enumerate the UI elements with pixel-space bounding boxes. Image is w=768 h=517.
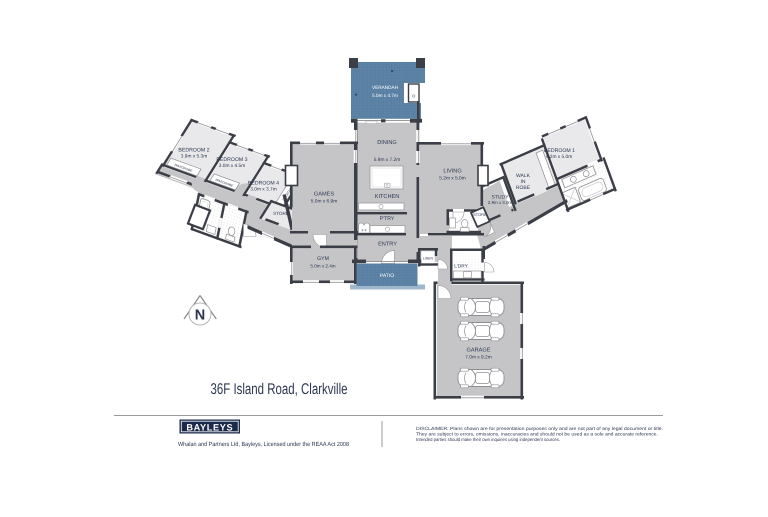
svg-text:ENTRY: ENTRY — [378, 242, 397, 248]
svg-text:STORE: STORE — [473, 212, 487, 217]
svg-text:BEDROOM 2: BEDROOM 2 — [178, 148, 209, 154]
svg-text:3.0m x 3.7m: 3.0m x 3.7m — [250, 187, 276, 193]
svg-text:ROBE: ROBE — [516, 185, 531, 191]
svg-text:Intended parties should make t: Intended parties should make their own i… — [416, 437, 560, 442]
svg-text:PATIO: PATIO — [380, 273, 394, 279]
svg-text:KITCHEN: KITCHEN — [375, 194, 400, 200]
svg-text:2.9m x 3.0m: 2.9m x 3.0m — [488, 200, 512, 205]
svg-text:36F Island Road, Clarkville: 36F Island Road, Clarkville — [211, 381, 348, 398]
svg-text:BEDROOM 1: BEDROOM 1 — [544, 148, 575, 154]
svg-text:GAMES: GAMES — [314, 192, 334, 198]
svg-text:3.9m x 5.3m: 3.9m x 5.3m — [181, 154, 207, 160]
svg-text:4.2m x 5.0m: 4.2m x 5.0m — [546, 154, 572, 160]
svg-text:STORE: STORE — [273, 211, 289, 216]
svg-text:N: N — [195, 308, 205, 324]
svg-text:F F: F F — [362, 229, 367, 233]
svg-text:7.0m x 9.2m: 7.0m x 9.2m — [465, 355, 491, 361]
svg-text:Whalan and Partners Ltd, Bayle: Whalan and Partners Ltd, Bayleys, Licens… — [178, 441, 350, 448]
svg-text:L'DRY: L'DRY — [454, 264, 468, 270]
svg-text:BAYLEYS: BAYLEYS — [186, 422, 233, 432]
svg-text:DISCLAIMER: Plans shown are fo: DISCLAIMER: Plans shown are for presenta… — [416, 426, 663, 431]
svg-text:VERANDAH: VERANDAH — [372, 85, 398, 90]
svg-text:P'TRY: P'TRY — [380, 216, 395, 222]
svg-text:GARAGE: GARAGE — [467, 348, 491, 354]
svg-text:3.0m x 4.5m: 3.0m x 4.5m — [219, 163, 245, 169]
svg-text:LINEN: LINEN — [423, 257, 434, 261]
svg-text:BEDROOM 4: BEDROOM 4 — [248, 181, 279, 187]
svg-text:5.2m x 5.0m: 5.2m x 5.0m — [439, 176, 465, 182]
svg-text:5.0m x 2.4m: 5.0m x 2.4m — [310, 264, 335, 269]
svg-text:5.9m x 7.2m: 5.9m x 7.2m — [374, 157, 400, 163]
svg-text:DINING: DINING — [377, 140, 397, 146]
svg-text:5.0m x 4.7m: 5.0m x 4.7m — [372, 93, 398, 98]
svg-text:5.0m x 6.9m: 5.0m x 6.9m — [311, 199, 337, 205]
svg-text:GYM: GYM — [317, 256, 329, 262]
svg-text:LIVING: LIVING — [443, 169, 461, 175]
svg-text:BEDROOM 3: BEDROOM 3 — [216, 157, 247, 163]
svg-text:They are subject to errors, om: They are subject to errors, omissions, i… — [416, 432, 658, 437]
